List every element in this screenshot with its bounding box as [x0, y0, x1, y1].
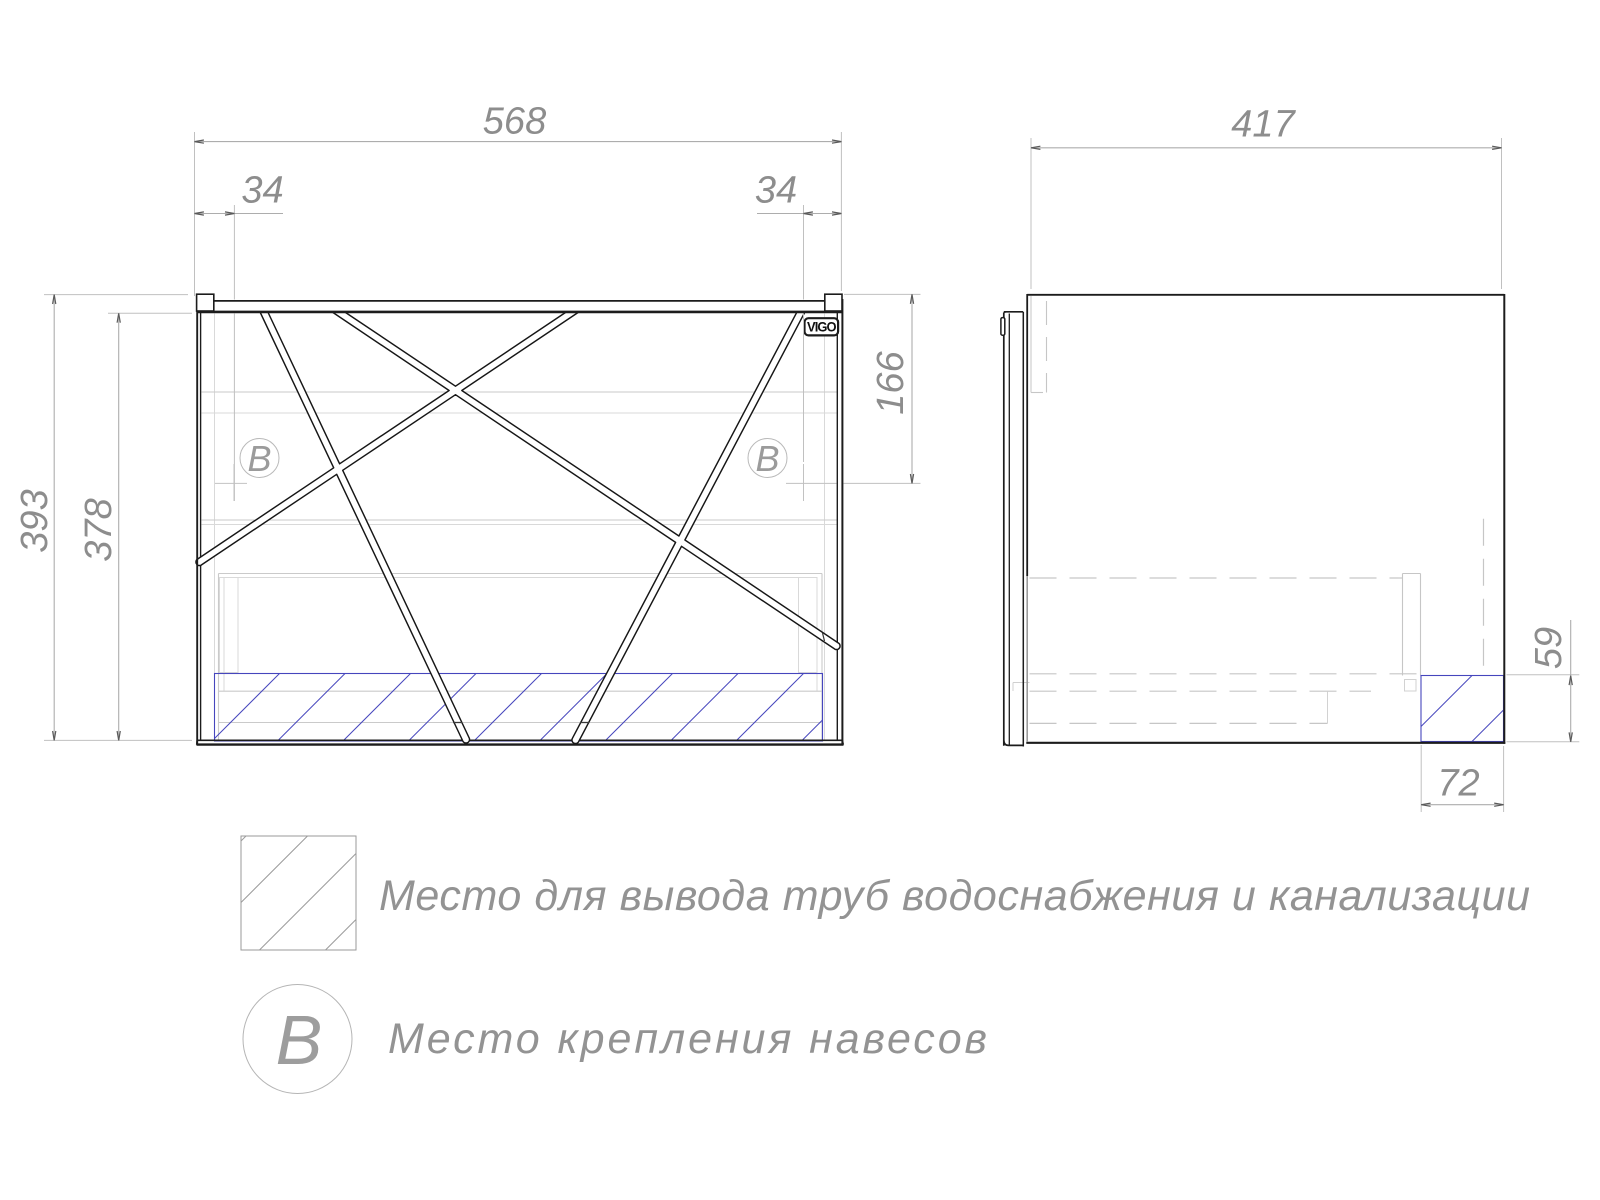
svg-text:393: 393 [14, 489, 56, 552]
svg-text:417: 417 [1231, 104, 1296, 146]
svg-text:166: 166 [870, 350, 912, 414]
svg-text:59: 59 [1528, 627, 1570, 669]
svg-text:VIGO: VIGO [807, 320, 836, 335]
svg-text:B: B [755, 438, 779, 479]
svg-text:72: 72 [1437, 763, 1479, 805]
svg-text:34: 34 [241, 170, 283, 212]
svg-text:Место для вывода труб водоснаб: Место для вывода труб водоснабжения и ка… [379, 872, 1530, 920]
svg-text:378: 378 [78, 498, 120, 561]
svg-text:B: B [247, 438, 271, 479]
svg-text:568: 568 [483, 101, 546, 143]
svg-text:Место крепления навесов: Место крепления навесов [388, 1015, 987, 1063]
svg-text:34: 34 [755, 170, 797, 212]
svg-text:B: B [276, 1001, 323, 1079]
